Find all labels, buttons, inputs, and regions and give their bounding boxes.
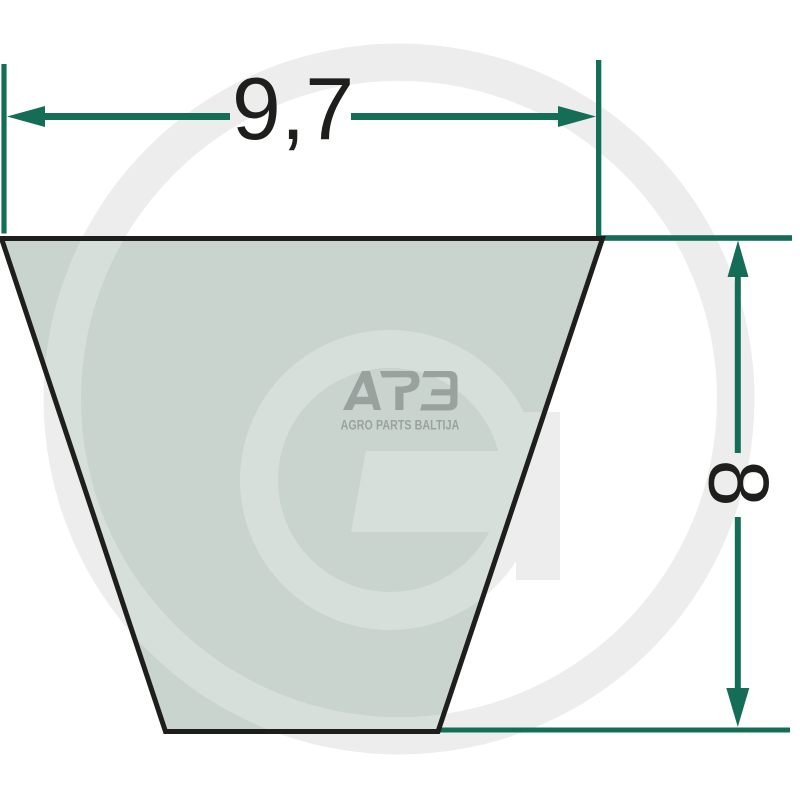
svg-text:9,7: 9,7: [232, 59, 354, 158]
svg-text:AGRO PARTS BALTIJA: AGRO PARTS BALTIJA: [341, 417, 460, 433]
svg-text:8: 8: [690, 459, 785, 506]
